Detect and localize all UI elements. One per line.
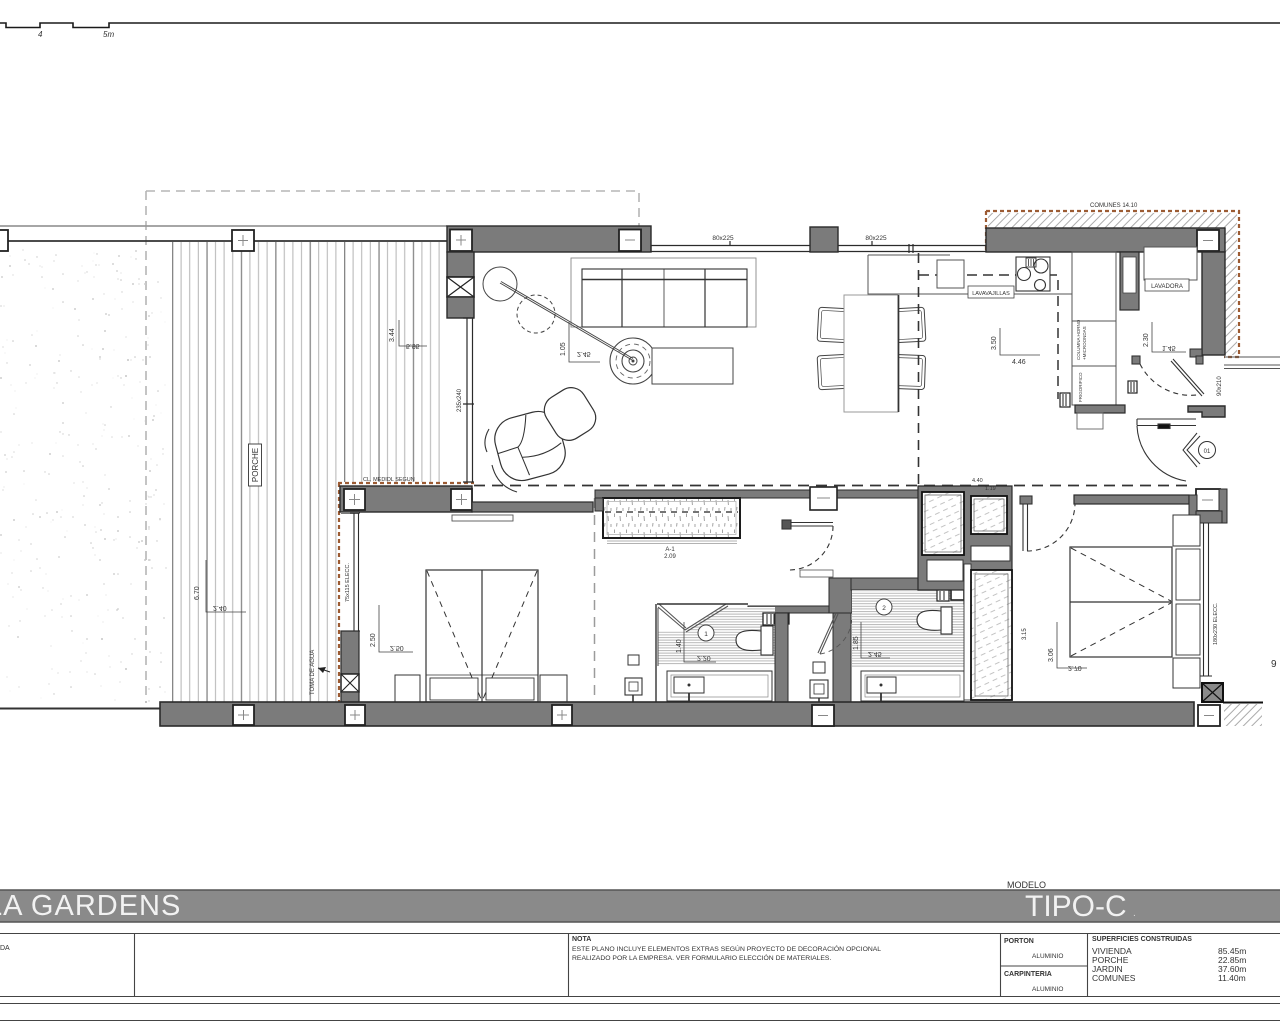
svg-text:PORCHE: PORCHE (251, 448, 260, 482)
svg-text:1.85: 1.85 (853, 636, 860, 650)
svg-text:2: 2 (882, 605, 886, 612)
svg-text:3.15: 3.15 (1022, 628, 1028, 640)
svg-text:SUPERFICIES CONSTRUIDAS: SUPERFICIES CONSTRUIDAS (1092, 936, 1192, 943)
svg-text:CARPINTERIA: CARPINTERIA (1004, 971, 1052, 978)
svg-text:2.50: 2.50 (390, 644, 404, 651)
svg-text:NOTA: NOTA (572, 936, 591, 943)
svg-text:LAVADORA: LAVADORA (1151, 284, 1183, 290)
svg-text:ESTE PLANO INCLUYE ELEMENTOS E: ESTE PLANO INCLUYE ELEMENTOS EXTRAS SEGÚ… (572, 944, 881, 953)
svg-text:5m: 5m (103, 30, 114, 39)
svg-text:COMUNES: COMUNES (1092, 973, 1136, 983)
svg-text:FRIGORIFICO: FRIGORIFICO (1078, 372, 1083, 402)
svg-text:TOMA DE AGUA: TOMA DE AGUA (310, 650, 316, 695)
svg-text:1.19: 1.19 (985, 486, 996, 492)
svg-text:2.45: 2.45 (868, 650, 882, 657)
svg-text:180x230 ELECC.: 180x230 ELECC. (1213, 602, 1219, 645)
svg-text:80x225: 80x225 (865, 235, 887, 242)
svg-text:11.40m: 11.40m (1218, 973, 1246, 983)
svg-text:2.50: 2.50 (370, 633, 377, 647)
svg-text:COLUMNA HORNO: COLUMNA HORNO (1076, 319, 1081, 360)
svg-text:LA GARDENS: LA GARDENS (0, 890, 181, 922)
svg-text:2.20: 2.20 (697, 654, 711, 661)
svg-text:ALUMINIO: ALUMINIO (1032, 986, 1063, 993)
svg-text:+MICROONDAS: +MICROONDAS (1082, 326, 1087, 360)
svg-text:LAVAVAJILLAS: LAVAVAJILLAS (972, 291, 1010, 297)
svg-text:1.45: 1.45 (1162, 344, 1176, 351)
svg-text:1.40: 1.40 (676, 639, 683, 653)
svg-text:01: 01 (1204, 449, 1211, 455)
svg-text:1: 1 (704, 631, 708, 638)
svg-text:PORTON: PORTON (1004, 938, 1034, 945)
svg-text:4: 4 (38, 30, 43, 39)
svg-text:TIPO-C: TIPO-C (1025, 890, 1127, 923)
svg-text:2.40: 2.40 (213, 604, 227, 611)
svg-text:4.40: 4.40 (972, 478, 983, 484)
svg-text:3.50: 3.50 (991, 336, 998, 350)
svg-text:9: 9 (1271, 659, 1277, 670)
svg-text:235x240: 235x240 (457, 388, 463, 412)
svg-text:1.05: 1.05 (560, 342, 567, 356)
svg-text:ALUMINIO: ALUMINIO (1032, 953, 1063, 960)
svg-text:2.09: 2.09 (664, 554, 676, 560)
svg-text:DA: DA (0, 945, 10, 952)
svg-text:90x210: 90x210 (1217, 376, 1223, 396)
svg-text:6.70: 6.70 (194, 586, 201, 600)
svg-text:A-1: A-1 (665, 547, 675, 553)
svg-text:2.70: 2.70 (1068, 664, 1082, 671)
svg-text:2.30: 2.30 (1143, 333, 1150, 347)
svg-text:80x225: 80x225 (712, 235, 734, 242)
svg-text:4.46: 4.46 (1012, 359, 1026, 366)
svg-text:REALIZADO POR LA EMPRESA. VER: REALIZADO POR LA EMPRESA. VER FORMULARIO… (572, 953, 831, 962)
svg-text:2.45: 2.45 (577, 350, 591, 357)
svg-text:3.44: 3.44 (389, 328, 396, 342)
svg-text:MODELO: MODELO (1007, 880, 1046, 890)
svg-text:.: . (1133, 908, 1136, 919)
svg-text:5.95: 5.95 (406, 342, 420, 349)
svg-text:3.06: 3.06 (1048, 648, 1055, 662)
svg-text:75x115 ELECC.: 75x115 ELECC. (345, 562, 351, 602)
svg-text:COMUNES 14.10: COMUNES 14.10 (1090, 203, 1138, 209)
